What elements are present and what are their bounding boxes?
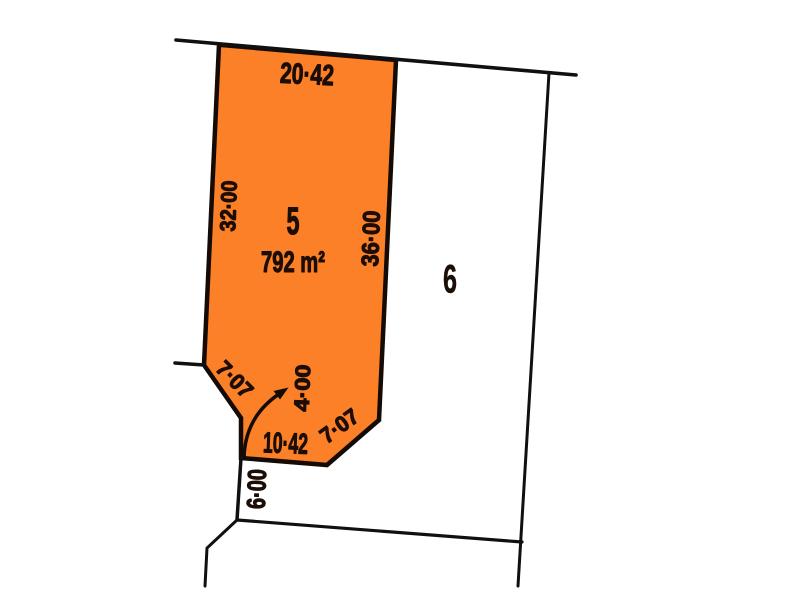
svg-text:6: 6 [443, 258, 457, 302]
svg-text:32·00: 32·00 [215, 180, 242, 232]
svg-text:6·00: 6·00 [241, 468, 272, 509]
svg-text:20·42: 20·42 [279, 58, 335, 93]
svg-text:4·00: 4·00 [291, 364, 316, 412]
svg-text:10·42: 10·42 [262, 427, 308, 461]
svg-text:36·00: 36·00 [357, 210, 386, 267]
svg-text:5: 5 [287, 200, 300, 243]
svg-text:792 m²: 792 m² [261, 246, 325, 279]
